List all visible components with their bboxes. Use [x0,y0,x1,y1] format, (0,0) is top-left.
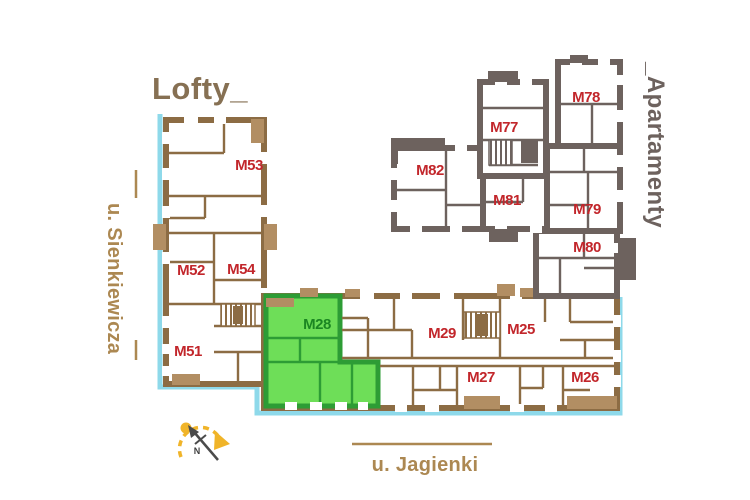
lofty-staircase-core [233,306,243,324]
unit-label-m25[interactable]: M25 [507,321,535,338]
floor-plan-page: M53 M52 M54 M51 M28 M29 M25 M27 M26 M82 … [0,0,750,500]
apartamenty-elevator [521,141,538,163]
unit-label-m26[interactable]: M26 [571,369,599,386]
unit-label-m77[interactable]: M77 [490,119,518,136]
street-sienkiewicza: u. Sienkiewicza [103,170,136,360]
unit-label-m79[interactable]: M79 [573,201,601,218]
north-label: N [194,446,201,456]
unit-label-m81[interactable]: M81 [493,192,521,209]
unit-label-m27[interactable]: M27 [467,369,495,386]
unit-label-m51[interactable]: M51 [174,343,202,360]
unit-label-m82[interactable]: M82 [416,162,444,179]
street-jagienki: u. Jagienki [352,444,492,476]
apartamenty-title: _Apartamenty [642,61,669,228]
street-sienkiewicza-label: u. Sienkiewicza [103,203,125,355]
unit-label-m52[interactable]: M52 [177,262,205,279]
wing-staircase-core [476,314,488,336]
apartamenty-staircase [489,140,512,165]
unit-label-m54[interactable]: M54 [227,261,256,278]
unit-label-m29[interactable]: M29 [428,325,456,342]
unit-label-m28[interactable]: M28 [303,316,331,333]
compass: N [179,423,230,461]
street-jagienki-label: u. Jagienki [372,454,479,476]
unit-label-m53[interactable]: M53 [235,157,263,174]
lofty-title: Lofty_ [152,71,248,106]
compass-arc-arrowhead [214,431,230,450]
jagienki-wing-building [264,284,621,412]
unit-label-m80[interactable]: M80 [573,239,601,256]
floor-plan-svg: M53 M52 M54 M51 M28 M29 M25 M27 M26 M82 … [0,0,750,500]
unit-label-m78[interactable]: M78 [572,89,600,106]
